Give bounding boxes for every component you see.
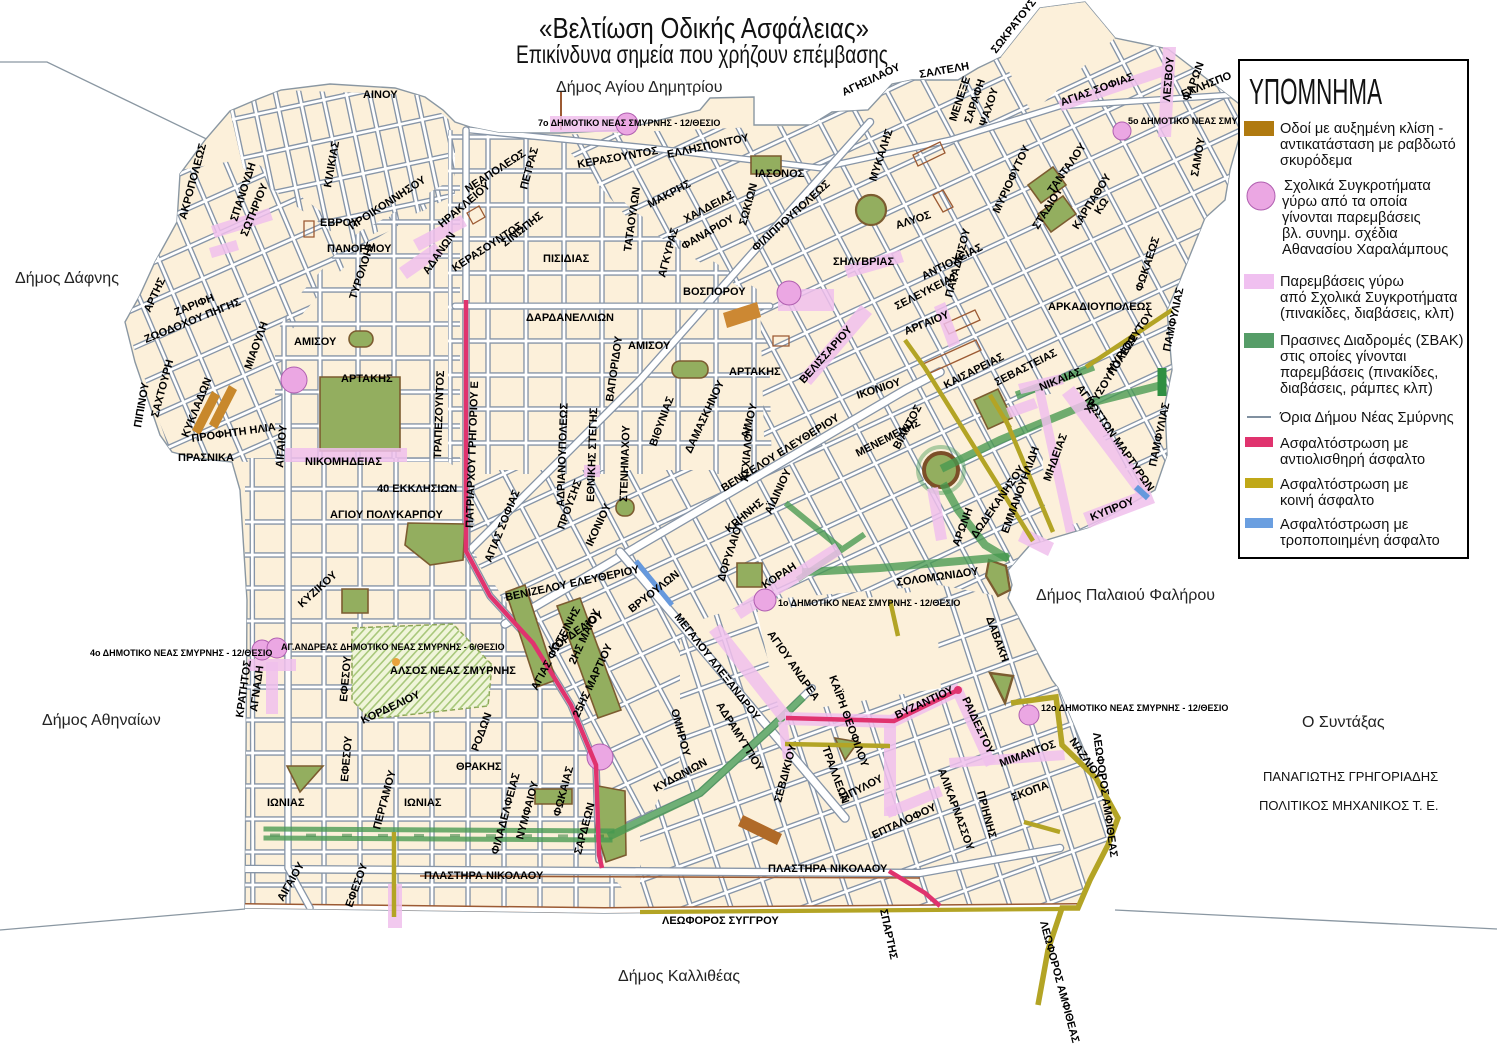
svg-text:40 ΕΚΚΛΗΣΙΩΝ: 40 ΕΚΚΛΗΣΙΩΝ <box>377 483 457 495</box>
svg-text:αντιολισθηρή άσφαλτο: αντιολισθηρή άσφαλτο <box>1280 452 1425 468</box>
svg-text:Ασφαλτόστρωση με: Ασφαλτόστρωση με <box>1280 436 1409 452</box>
svg-text:γύρω από τα οποία: γύρω από τα οποία <box>1282 194 1408 210</box>
svg-text:ΒΟΣΠΟΡΟΥ: ΒΟΣΠΟΡΟΥ <box>683 286 746 298</box>
svg-text:ΑΙΝΟΥ: ΑΙΝΟΥ <box>363 89 398 101</box>
svg-text:ΑΓΙΟΥ ΠΟΛΥΚΑΡΠΟΥ: ΑΓΙΟΥ ΠΟΛΥΚΑΡΠΟΥ <box>330 509 444 521</box>
svg-text:ΠΑΝΟΡΜΟΥ: ΠΑΝΟΡΜΟΥ <box>327 243 392 255</box>
svg-text:ΥΠΟΜΝΗΜΑ: ΥΠΟΜΝΗΜΑ <box>1249 71 1382 112</box>
svg-text:ΑΡΤΑΚΗΣ: ΑΡΤΑΚΗΣ <box>729 366 781 378</box>
svg-text:ΙΩΝΙΑΣ: ΙΩΝΙΑΣ <box>267 797 305 809</box>
svg-text:Σχολικά Συγκροτήματα: Σχολικά Συγκροτήματα <box>1284 178 1431 194</box>
svg-text:από Σχολικά Συγκροτήματα: από Σχολικά Συγκροτήματα <box>1280 290 1458 306</box>
svg-text:Ασφαλτόστρωση με: Ασφαλτόστρωση με <box>1280 517 1409 533</box>
svg-text:4ο ΔΗΜΟΤΙΚΟ ΝΕΑΣ ΣΜΥΡΝΗΣ - 12/: 4ο ΔΗΜΟΤΙΚΟ ΝΕΑΣ ΣΜΥΡΝΗΣ - 12/ΘΕΣΙΟ <box>90 648 272 658</box>
svg-text:Οδοί με αυξημένη κλίση -: Οδοί με αυξημένη κλίση - <box>1280 121 1443 137</box>
svg-text:διαβάσεις, ράμπες κλπ): διαβάσεις, ράμπες κλπ) <box>1280 381 1433 397</box>
svg-text:Δήμος Αθηναίων: Δήμος Αθηναίων <box>42 712 161 729</box>
svg-text:ΑΡΚΑΔΙΟΥΠΟΛΕΩΣ: ΑΡΚΑΔΙΟΥΠΟΛΕΩΣ <box>1048 301 1152 313</box>
svg-text:Ο Συντάξας: Ο Συντάξας <box>1302 714 1385 731</box>
svg-text:ΠΛΑΣΤΗΡΑ ΝΙΚΟΛΑΟΥ: ΠΛΑΣΤΗΡΑ ΝΙΚΟΛΑΟΥ <box>424 870 544 882</box>
svg-text:Πρασινες Διαδρομές (ΣΒΑΚ): Πρασινες Διαδρομές (ΣΒΑΚ) <box>1280 333 1464 349</box>
svg-text:(πινακίδες, διαβάσεις, κλπ): (πινακίδες, διαβάσεις, κλπ) <box>1280 306 1454 322</box>
svg-text:ΘΡΑΚΗΣ: ΘΡΑΚΗΣ <box>456 761 502 773</box>
svg-text:ΔΑΡΔΑΝΕΛΛΙΩΝ: ΔΑΡΔΑΝΕΛΛΙΩΝ <box>526 312 614 324</box>
svg-text:ΠΛΑΣΤΗΡΑ ΝΙΚΟΛΑΟΥ: ΠΛΑΣΤΗΡΑ ΝΙΚΟΛΑΟΥ <box>768 863 888 875</box>
svg-text:Αθανασίου Χαραλάμπους: Αθανασίου Χαραλάμπους <box>1282 242 1448 258</box>
svg-text:12ο ΔΗΜΟΤΙΚΟ ΝΕΑΣ ΣΜΥΡΝΗΣ - 1: 12ο ΔΗΜΟΤΙΚΟ ΝΕΑΣ ΣΜΥΡΝΗΣ - 12/ΘΕΣΙΟ <box>1041 703 1228 713</box>
svg-text:Επικίνδυνα σημεία που χρήζουν: Επικίνδυνα σημεία που χρήζουν επέμβασης <box>516 41 888 69</box>
svg-text:ΣΗΛΥΒΡΙΑΣ: ΣΗΛΥΒΡΙΑΣ <box>833 256 895 268</box>
svg-text:Παρεμβάσεις γύρω: Παρεμβάσεις γύρω <box>1280 274 1404 290</box>
svg-text:ΙΩΝΙΑΣ: ΙΩΝΙΑΣ <box>404 797 442 809</box>
svg-text:τροποποιημένη άσφαλτο: τροποποιημένη άσφαλτο <box>1280 533 1440 549</box>
svg-text:στις οποίες γίνονται: στις οποίες γίνονται <box>1280 349 1406 365</box>
svg-text:ΙΑΣΟΝΟΣ: ΙΑΣΟΝΟΣ <box>755 168 805 180</box>
svg-text:σκυρόδεμα: σκυρόδεμα <box>1280 153 1353 169</box>
svg-text:Δήμος Αγίου Δημητρίου: Δήμος Αγίου Δημητρίου <box>556 79 722 96</box>
svg-text:κοινή άσφαλτο: κοινή άσφαλτο <box>1280 493 1374 509</box>
svg-text:ΑΛΣΟΣ ΝΕΑΣ ΣΜΥΡΝΗΣ: ΑΛΣΟΣ ΝΕΑΣ ΣΜΥΡΝΗΣ <box>390 665 516 677</box>
svg-text:5ο ΔΗΜΟΤΙΚΟ ΝΕΑΣ ΣΜΥΡΝ: 5ο ΔΗΜΟΤΙΚΟ ΝΕΑΣ ΣΜΥΡΝ <box>1128 116 1250 126</box>
svg-text:βλ. συνημ. σχέδια: βλ. συνημ. σχέδια <box>1282 226 1398 242</box>
svg-text:ΠΡΑΣΝΙΚΑ: ΠΡΑΣΝΙΚΑ <box>178 452 234 464</box>
svg-text:Δήμος Δάφνης: Δήμος Δάφνης <box>15 270 119 287</box>
svg-text:Δήμος Καλλιθέας: Δήμος Καλλιθέας <box>618 968 740 985</box>
svg-text:Δήμος Παλαιού Φαλήρου: Δήμος Παλαιού Φαλήρου <box>1036 587 1215 604</box>
svg-text:ΑΡΤΑΚΗΣ: ΑΡΤΑΚΗΣ <box>341 373 393 385</box>
svg-text:ΕΒΡΟΥ: ΕΒΡΟΥ <box>320 217 359 229</box>
svg-text:1ο ΔΗΜΟΤΙΚΟ ΝΕΑΣ ΣΜΥΡΝΗΣ - 12/: 1ο ΔΗΜΟΤΙΚΟ ΝΕΑΣ ΣΜΥΡΝΗΣ - 12/ΘΕΣΙΟ <box>778 598 960 608</box>
svg-text:αντικατάσταση με ραβδωτό: αντικατάσταση με ραβδωτό <box>1280 137 1456 153</box>
svg-text:ΝΙΚΟΜΗΔΕΙΑΣ: ΝΙΚΟΜΗΔΕΙΑΣ <box>305 456 382 468</box>
svg-text:ΠΙΣΙΔΙΑΣ: ΠΙΣΙΔΙΑΣ <box>543 253 590 265</box>
svg-text:ΑΓ.ΑΝΔΡΕΑΣ ΔΗΜΟΤΙΚΟ ΝΕΑΣ ΣΜΥΡΝ: ΑΓ.ΑΝΔΡΕΑΣ ΔΗΜΟΤΙΚΟ ΝΕΑΣ ΣΜΥΡΝΗΣ - 6/ΘΕΣ… <box>281 642 505 652</box>
svg-text:παρεμβάσεις (πινακίδες,: παρεμβάσεις (πινακίδες, <box>1280 365 1438 381</box>
svg-text:ΑΜΙΣΟΥ: ΑΜΙΣΟΥ <box>628 340 671 352</box>
svg-text:ΠΑΝΑΓΙΩΤΗΣ ΓΡΗΓΟΡΙΑΔΗΣ: ΠΑΝΑΓΙΩΤΗΣ ΓΡΗΓΟΡΙΑΔΗΣ <box>1263 769 1438 784</box>
svg-text:7ο ΔΗΜΟΤΙΚΟ ΝΕΑΣ ΣΜΥΡΝΗΣ - 12/: 7ο ΔΗΜΟΤΙΚΟ ΝΕΑΣ ΣΜΥΡΝΗΣ - 12/ΘΕΣΙΟ <box>538 118 720 128</box>
svg-text:ΛΕΩΦΟΡΟΣ ΣΥΓΓΡΟΥ: ΛΕΩΦΟΡΟΣ ΣΥΓΓΡΟΥ <box>662 915 779 927</box>
svg-text:ΠΟΛΙΤΙΚΟΣ ΜΗΧΑΝΙΚΟΣ Τ. Ε.: ΠΟΛΙΤΙΚΟΣ ΜΗΧΑΝΙΚΟΣ Τ. Ε. <box>1259 798 1439 813</box>
svg-text:γίνονται παρεμβάσεις: γίνονται παρεμβάσεις <box>1282 210 1421 226</box>
svg-text:Όρια Δήμου Νέας Σμύρνης: Όρια Δήμου Νέας Σμύρνης <box>1279 410 1454 426</box>
svg-text:Ασφαλτόστρωση με: Ασφαλτόστρωση με <box>1280 477 1409 493</box>
svg-text:ΑΜΙΣΟΥ: ΑΜΙΣΟΥ <box>294 336 337 348</box>
